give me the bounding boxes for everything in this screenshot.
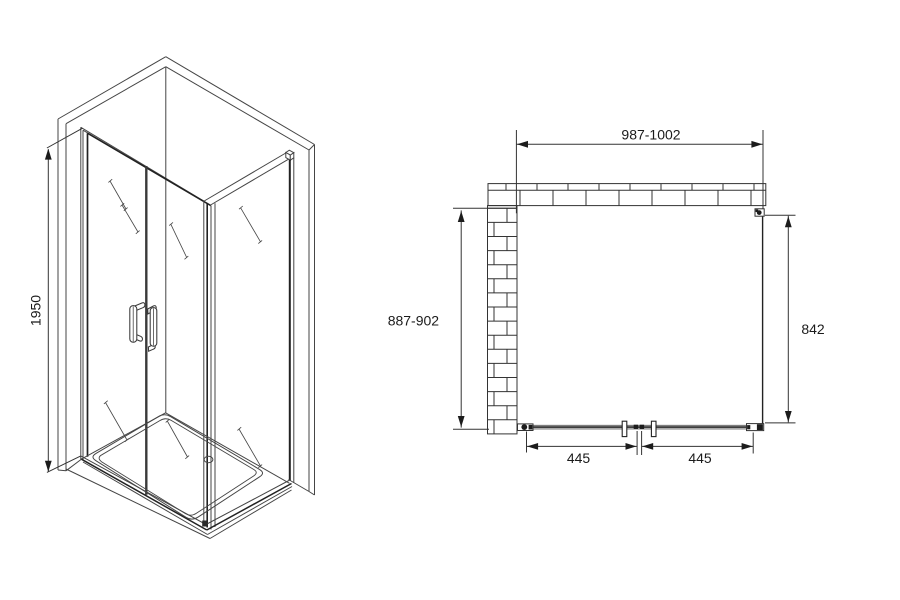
- svg-text:1950: 1950: [28, 295, 44, 326]
- svg-text:842: 842: [801, 321, 825, 337]
- svg-text:445: 445: [688, 450, 712, 466]
- svg-text:987-1002: 987-1002: [621, 127, 680, 143]
- svg-text:887-902: 887-902: [388, 313, 440, 329]
- svg-text:445: 445: [567, 450, 591, 466]
